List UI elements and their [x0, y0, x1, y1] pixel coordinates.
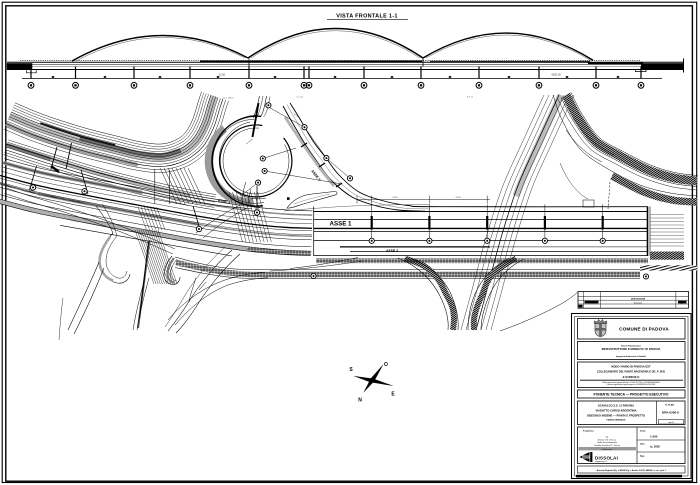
svg-text:lu. 2005: lu. 2005	[650, 445, 660, 449]
svg-text:PONENTE TECNICA — PROGETTO E: PONENTE TECNICA — PROGETTO ESECUTIVO	[594, 393, 669, 397]
svg-text:14.50: 14.50	[392, 197, 398, 199]
svg-text:ing.: ing.	[606, 437, 609, 439]
svg-text:NODO VIARIO DI PADOVA EST: NODO VIARIO DI PADOVA EST	[611, 364, 651, 368]
svg-text:S.S. 11: S.S. 11	[467, 97, 473, 99]
svg-text:Antonio Tralli - Ferrara: Antonio Tralli - Ferrara	[598, 438, 616, 441]
svg-text:Agg.:: Agg.:	[640, 454, 645, 457]
svg-text:11.50: 11.50	[219, 74, 225, 77]
svg-text:Studio Tecnico Associato: Studio Tecnico Associato	[597, 441, 617, 444]
svg-text:1:500: 1:500	[650, 434, 658, 438]
svg-text:rev. 0: rev. 0	[668, 422, 674, 424]
svg-text:INFRASTRUTTURE E MOBILITA' DI: INFRASTRUTTURE E MOBILITA' DI PADOVA	[602, 347, 661, 351]
svg-text:VIADOTTO CORSO ARGENTINA: VIADOTTO CORSO ARGENTINA	[595, 408, 636, 412]
svg-text:Autorità Digitale Dlg. n°82/05: Autorità Digitale Dlg. n°82/05 Dig. e Ar…	[597, 469, 668, 472]
svg-text:Scala:: Scala:	[640, 430, 646, 432]
svg-text:PIANTA GENERALE: PIANTA GENERALE	[607, 419, 627, 422]
svg-text:COMUNE DI PADOVA: COMUNE DI PADOVA	[619, 327, 669, 332]
svg-text:Revisione: Revisione	[634, 302, 642, 304]
svg-text:DESCRIZIONE: DESCRIZIONE	[631, 299, 646, 301]
svg-text:Ingegneria Infrastrutture Viab: Ingegneria Infrastrutture Viabilita'	[616, 355, 647, 358]
svg-text:VISTA FRONTALE 1-1: VISTA FRONTALE 1-1	[336, 14, 398, 20]
svg-text:E SVINCOLO: E SVINCOLO	[623, 375, 640, 379]
svg-text:str. com.: str. com.	[296, 96, 304, 99]
svg-text:DISSOLAI: DISSOLAI	[595, 455, 618, 460]
svg-text:Data:: Data:	[640, 442, 645, 445]
svg-text:ASSE 2: ASSE 2	[386, 249, 398, 253]
svg-text:DISEGNI DI INSIEME — PIANTA E: DISEGNI DI INSIEME — PIANTA E PROSPETTO	[587, 414, 645, 418]
svg-text:N: N	[358, 398, 362, 404]
svg-text:COLLEGAMENTO DEL PONTE ARGENTI: COLLEGAMENTO DEL PONTE ARGENTINA E GR. A…	[597, 371, 665, 374]
svg-text:ASSE 1: ASSE 1	[329, 221, 352, 228]
svg-text:N. ELAB.: N. ELAB.	[666, 404, 675, 407]
svg-text:collaborazione: collaborazione	[602, 448, 613, 451]
svg-text:DPA-0200-0: DPA-0200-0	[662, 411, 679, 415]
svg-text:Progettista:: Progettista:	[583, 429, 594, 432]
svg-text:41/51.50: 41/51.50	[551, 74, 561, 77]
svg-text:engineering s.r.l.: engineering s.r.l.	[595, 460, 608, 463]
svg-text:74.50: 74.50	[455, 197, 461, 199]
svg-text:SCAVALCO S.S. 11 PADANA: SCAVALCO S.S. 11 PADANA	[598, 403, 634, 407]
svg-text:O: O	[384, 362, 388, 368]
svg-text:Via della Ginnastica 21 - Ferr: Via della Ginnastica 21 - Ferrara	[594, 444, 620, 447]
